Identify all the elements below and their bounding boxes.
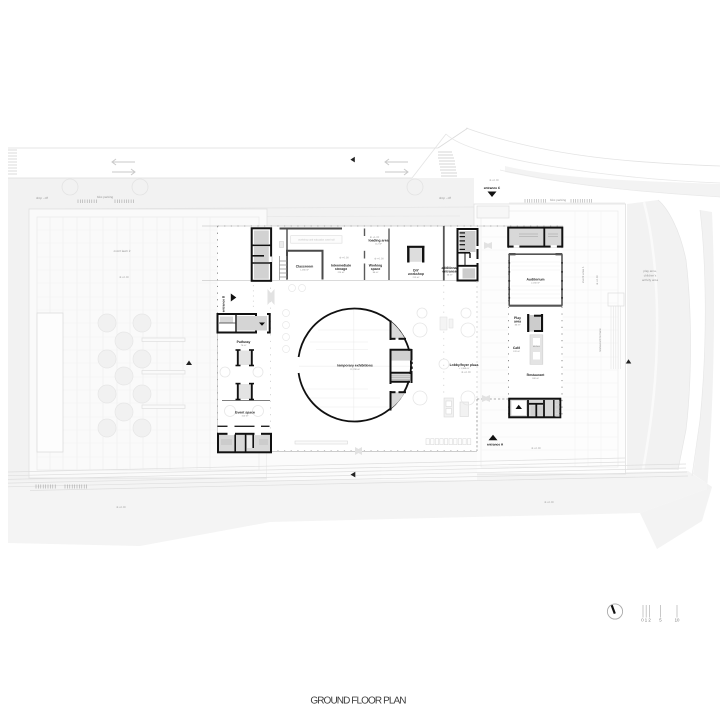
svg-text:45 m²: 45 m² xyxy=(447,274,453,277)
svg-text:Auditorium: Auditorium xyxy=(526,278,544,282)
svg-text:bike parking: bike parking xyxy=(97,195,114,199)
svg-text:event lawn 2: event lawn 2 xyxy=(114,249,131,253)
svg-text:workshop: workshop xyxy=(407,272,424,276)
svg-text:Classroom: Classroom xyxy=(296,265,314,269)
svg-text:drop - off: drop - off xyxy=(36,196,48,200)
svg-text:⊕ +0.00: ⊕ +0.00 xyxy=(531,447,541,450)
svg-text:225 m²: 225 m² xyxy=(338,271,345,274)
svg-text:entrance C: entrance C xyxy=(484,186,501,190)
svg-text:kitchen: kitchen xyxy=(533,345,541,348)
svg-text:entrance B: entrance B xyxy=(222,295,226,312)
svg-text:activity area: activity area xyxy=(642,278,658,282)
svg-text:340 m²: 340 m² xyxy=(532,377,539,380)
svg-text:restaurant terrace: restaurant terrace xyxy=(598,328,602,352)
svg-text:children's: children's xyxy=(644,274,657,278)
svg-text:area: area xyxy=(514,320,521,324)
svg-text:Café: Café xyxy=(513,346,520,350)
svg-text:storage: storage xyxy=(335,267,347,271)
svg-text:10: 10 xyxy=(675,618,680,623)
svg-text:drop - off: drop - off xyxy=(439,196,451,200)
svg-text:⊕ +1.00: ⊕ +1.00 xyxy=(370,236,380,239)
svg-text:Event space: Event space xyxy=(235,411,255,415)
svg-text:temporary exhibitions: temporary exhibitions xyxy=(337,364,373,368)
svg-text:⊕ +0.00: ⊕ +0.00 xyxy=(119,276,129,279)
svg-text:≈ 1,380 m²: ≈ 1,380 m² xyxy=(459,367,470,370)
svg-text:entrance: entrance xyxy=(442,270,456,274)
svg-text:GROUND FLOOR PLAN: GROUND FLOOR PLAN xyxy=(310,696,406,707)
svg-text:95 m²: 95 m² xyxy=(373,271,379,274)
svg-text:Pathway: Pathway xyxy=(237,340,251,344)
svg-text:⊕ +0.00: ⊕ +0.00 xyxy=(489,179,499,182)
svg-text:Lobby/foyer plaza: Lobby/foyer plaza xyxy=(450,363,479,367)
svg-text:85 m²: 85 m² xyxy=(515,324,521,327)
svg-text:22,700 m²: 22,700 m² xyxy=(350,368,360,371)
svg-text:2,150 m²: 2,150 m² xyxy=(531,282,540,285)
svg-text:play area,: play area, xyxy=(643,269,656,273)
svg-text:1,266 m²: 1,266 m² xyxy=(300,269,309,272)
svg-text:⊕ +0.00: ⊕ +0.00 xyxy=(461,371,471,374)
svg-text:75 m²: 75 m² xyxy=(241,344,247,347)
svg-text:workshop and education zone ha: workshop and education zone hall xyxy=(298,239,335,242)
svg-text:⊕ +0.00: ⊕ +0.00 xyxy=(339,257,349,260)
svg-text:0 1 2: 0 1 2 xyxy=(641,618,651,623)
svg-text:Restaurant: Restaurant xyxy=(527,373,546,377)
svg-text:bike parking: bike parking xyxy=(550,198,567,202)
svg-text:loading area: loading area xyxy=(369,239,389,243)
svg-text:210 m²: 210 m² xyxy=(413,276,420,279)
svg-text:120 m²: 120 m² xyxy=(513,350,520,353)
svg-text:⊕ +0.00: ⊕ +0.00 xyxy=(544,501,554,504)
svg-text:space: space xyxy=(371,267,381,271)
svg-text:⊕ +0.00: ⊕ +0.00 xyxy=(596,275,599,285)
svg-text:⊕ +0.00: ⊕ +0.00 xyxy=(116,506,126,509)
svg-text:410 m²: 410 m² xyxy=(242,415,249,418)
svg-text:112 m²: 112 m² xyxy=(375,243,382,246)
svg-text:⊕ +0.00: ⊕ +0.00 xyxy=(374,258,384,261)
svg-text:event area 1: event area 1 xyxy=(581,266,585,283)
svg-text:entrance A: entrance A xyxy=(487,443,504,447)
